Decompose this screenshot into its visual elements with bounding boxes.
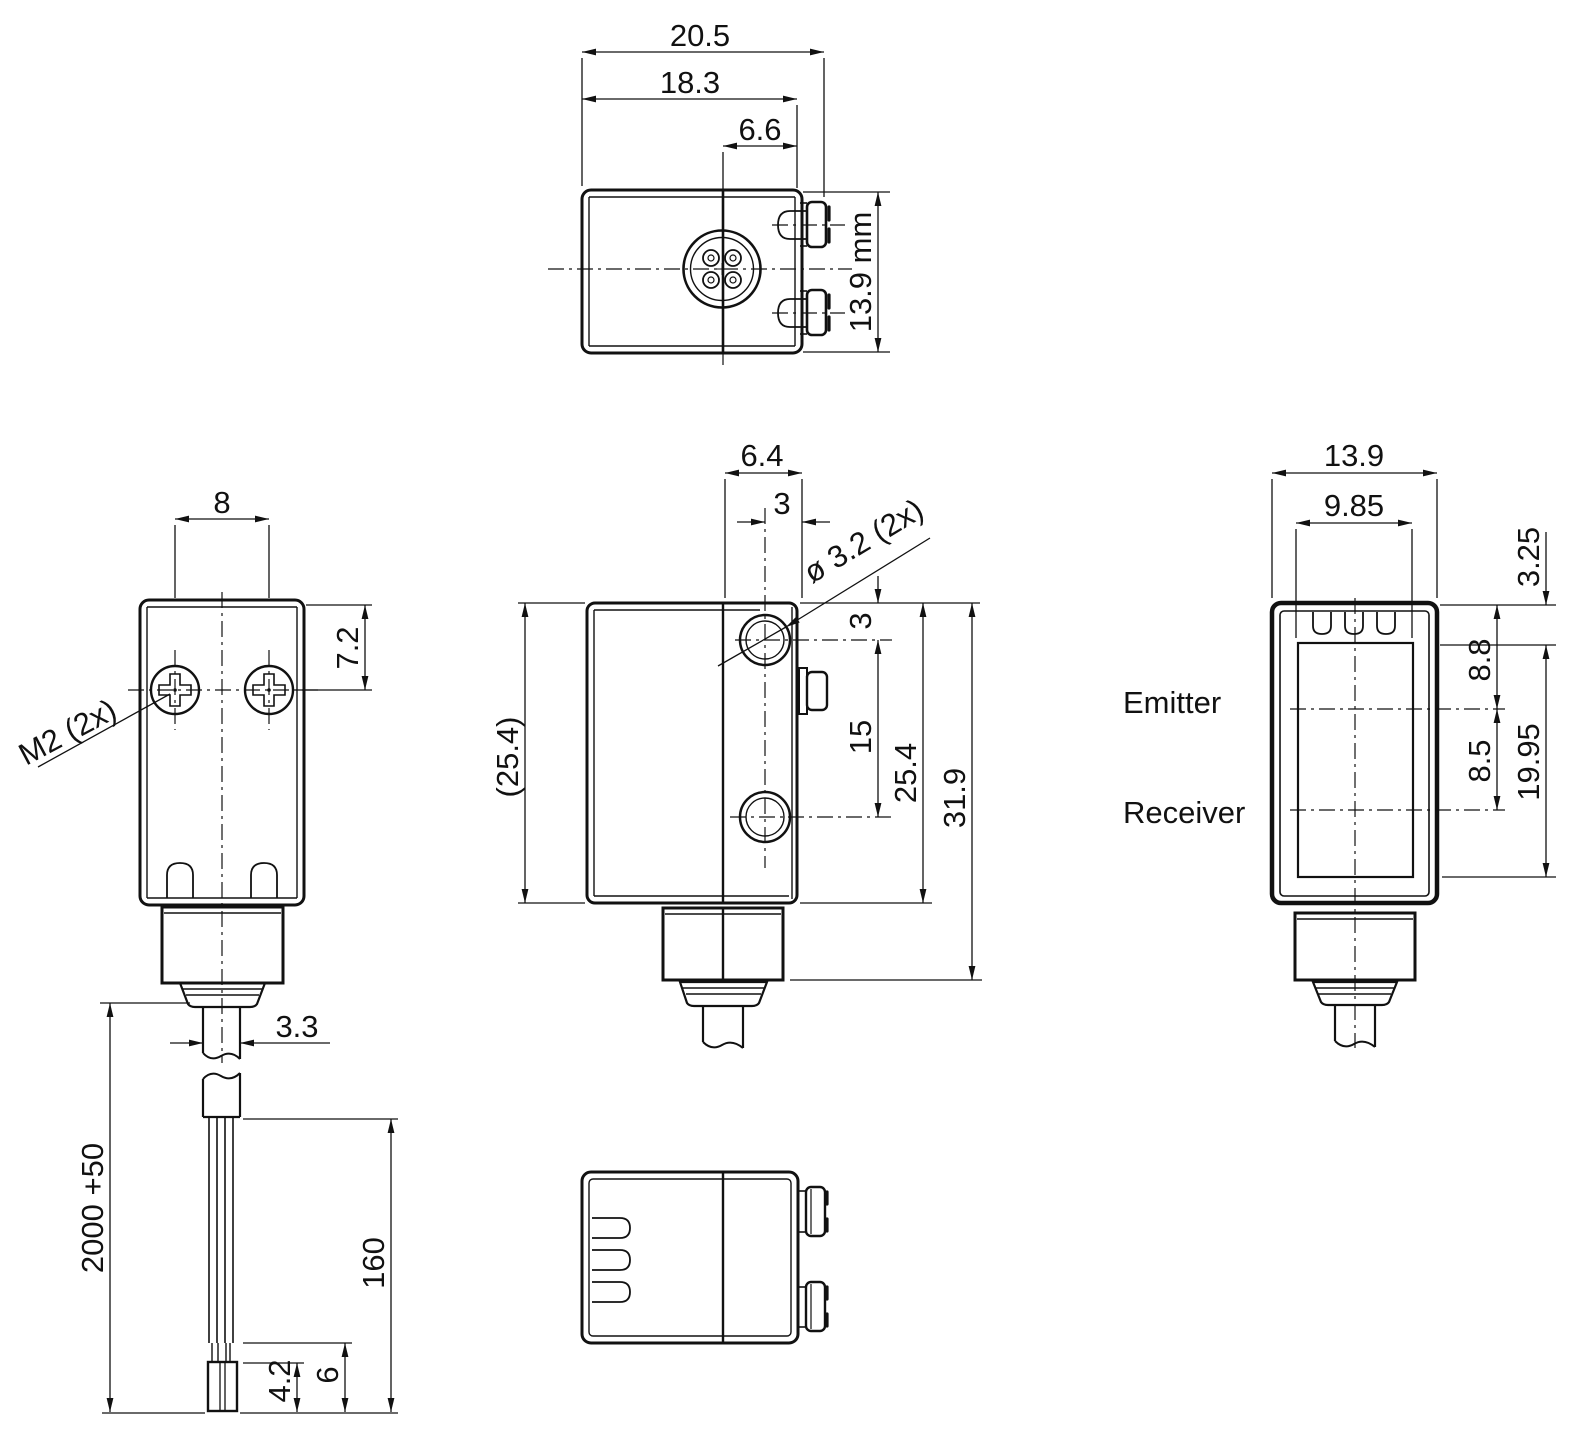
side-view-dimensions: 6.4 3 ø 3.2 (2x) 3 15 25.4 31.9 (25.4) xyxy=(490,438,982,980)
receiver-label: Receiver xyxy=(1123,795,1245,830)
wires xyxy=(209,1117,233,1362)
dim-label: 31.9 xyxy=(937,768,972,828)
dim-label: 3 xyxy=(773,486,790,521)
drawing-canvas: 20.5 18.3 6.6 13.9 mm xyxy=(0,0,1579,1438)
dim-label: 25.4 xyxy=(888,743,923,803)
mounting-screw-upper xyxy=(798,1187,827,1236)
dim-label: 3 xyxy=(843,612,878,629)
mounting-screw-lower xyxy=(798,1282,827,1331)
bottom-view xyxy=(582,1172,827,1343)
back-view-body xyxy=(128,592,318,1411)
bottom-slot xyxy=(167,863,193,898)
dim-label: 13.9 mm xyxy=(843,212,878,333)
dim-label: 6.4 xyxy=(740,438,783,473)
hole-diameter-label: ø 3.2 (2x) xyxy=(798,492,930,590)
dim-label: 15 xyxy=(843,720,878,754)
dim-label: 3.3 xyxy=(275,1009,318,1044)
dim-label: 6.6 xyxy=(738,112,781,147)
dim-label: (25.4) xyxy=(490,717,525,798)
wire-ferrule xyxy=(208,1362,237,1411)
dim-label: 2000 +50 xyxy=(75,1143,110,1273)
back-view: 8 7.2 M2 (2x) 3.3 2000 +50 160 6 4.2 xyxy=(13,485,398,1413)
dim-label: 160 xyxy=(356,1237,391,1289)
top-view: 20.5 18.3 6.6 13.9 mm xyxy=(548,18,890,365)
dim-label: 20.5 xyxy=(670,18,730,53)
dim-label: 4.2 xyxy=(262,1359,297,1402)
dim-label: 3.25 xyxy=(1511,527,1546,587)
front-view-dimensions: Emitter Receiver 13.9 9.85 3.25 19.95 8.… xyxy=(1123,438,1556,877)
cable-gland xyxy=(663,908,783,1006)
front-view: Emitter Receiver 13.9 9.85 3.25 19.95 8.… xyxy=(1123,438,1556,1048)
dim-label: 8.5 xyxy=(1462,739,1497,782)
bottom-slot xyxy=(251,863,277,898)
dim-label: 13.9 xyxy=(1324,438,1384,473)
dim-label: 8 xyxy=(213,485,230,520)
dim-label: 7.2 xyxy=(330,626,365,669)
dim-label: 19.95 xyxy=(1511,723,1546,801)
indicator-notches xyxy=(1313,612,1395,634)
dim-label: 6 xyxy=(310,1366,345,1383)
emitter-label: Emitter xyxy=(1123,685,1221,720)
top-view-body xyxy=(548,190,852,365)
screw-thread-label: M2 (2x) xyxy=(13,692,122,772)
dim-label: 18.3 xyxy=(660,65,720,100)
side-screw-tab xyxy=(799,668,827,714)
dim-label: 9.85 xyxy=(1324,488,1384,523)
top-view-dimensions: 20.5 18.3 6.6 13.9 mm xyxy=(582,18,890,352)
back-view-dimensions: 8 7.2 M2 (2x) 3.3 2000 +50 160 6 4.2 xyxy=(13,485,398,1413)
cable xyxy=(703,1006,743,1048)
light-guide-slots xyxy=(592,1218,630,1302)
side-view: 6.4 3 ø 3.2 (2x) 3 15 25.4 31.9 (25.4) xyxy=(490,438,982,1048)
dimension-drawing: 20.5 18.3 6.6 13.9 mm xyxy=(0,0,1579,1438)
